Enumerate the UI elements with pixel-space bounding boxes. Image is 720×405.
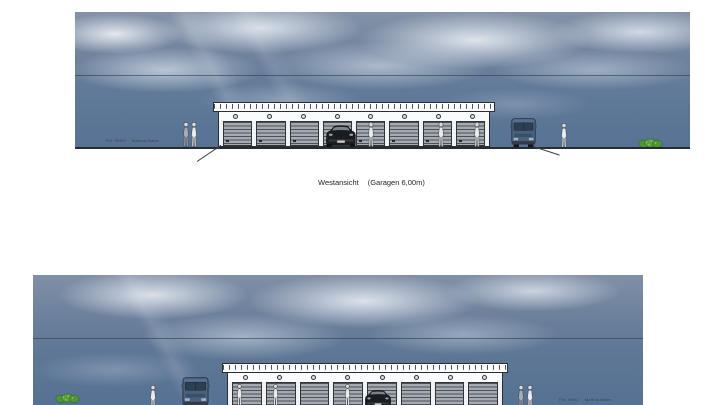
truck-figure — [181, 376, 210, 405]
garage-building — [227, 363, 503, 405]
door-vent-icon — [399, 373, 433, 382]
person-figure — [367, 122, 375, 147]
door-vent-icon — [262, 373, 296, 382]
truck-figure — [510, 117, 537, 147]
door-vent-icon — [354, 112, 388, 121]
door-vent-icon — [422, 112, 456, 121]
door-vent-icon — [253, 112, 287, 121]
parcel-label: Fln. 989/2 — [106, 138, 126, 143]
person-figure — [182, 122, 190, 147]
garage-door — [256, 121, 285, 146]
caption-detail: (Garagen 6,00m) — [368, 178, 425, 187]
car-figure — [325, 124, 357, 147]
person-figure — [517, 385, 525, 405]
door-vent-icon — [434, 373, 468, 382]
door-vent-icon — [331, 373, 365, 382]
person-figure — [149, 385, 157, 405]
horizon-line — [75, 75, 690, 76]
bush-figure — [638, 138, 663, 148]
roof-parapet — [222, 363, 508, 373]
view-caption: Westansicht (Garagen 6,00m) — [318, 178, 425, 187]
west-elevation-photo: Fln. 989/2 Markus Maier — [75, 12, 690, 149]
door-vent-icon — [455, 112, 489, 121]
garage-door — [401, 382, 431, 405]
door-vent-icon — [320, 112, 354, 121]
owner-label: Markus Maier — [585, 397, 612, 402]
opposite-elevation-photo: Fln. 989/2 Markus Maier — [33, 275, 643, 405]
roof-parapet — [213, 102, 495, 112]
door-vent-icon — [468, 373, 502, 382]
garage-door — [300, 382, 330, 405]
door-vent-icon — [287, 112, 321, 121]
person-figure — [560, 123, 568, 148]
vent-row — [218, 112, 490, 121]
door-vent-icon — [388, 112, 422, 121]
garage-door — [389, 121, 418, 146]
person-figure — [272, 384, 279, 405]
garage-door — [266, 382, 296, 405]
owner-label: Markus Maier — [132, 138, 159, 143]
garage-door — [435, 382, 465, 405]
person-figure — [236, 384, 243, 405]
drawing-sheet: Fln. 989/2 Markus Maier Westansicht (Gar… — [0, 0, 720, 405]
garage-door — [223, 121, 252, 146]
door-vent-icon — [219, 112, 253, 121]
caption-title: Westansicht — [318, 178, 359, 187]
person-figure — [344, 384, 351, 405]
parcel-label: Fln. 989/2 — [559, 397, 579, 402]
person-figure — [526, 385, 534, 405]
door-vent-icon — [365, 373, 399, 382]
plot-label: Fln. 989/2 Markus Maier — [559, 397, 611, 402]
garage-door — [468, 382, 498, 405]
garage-door — [290, 121, 319, 146]
person-figure — [437, 122, 445, 147]
person-figure — [190, 122, 198, 147]
vent-row — [227, 373, 503, 382]
horizon-line — [33, 338, 643, 339]
door-vent-icon — [297, 373, 331, 382]
door-vent-icon — [228, 373, 262, 382]
bush-figure — [55, 393, 80, 403]
plot-label: Fln. 989/2 Markus Maier — [106, 138, 158, 143]
person-figure — [473, 122, 481, 147]
car-figure — [364, 389, 392, 405]
